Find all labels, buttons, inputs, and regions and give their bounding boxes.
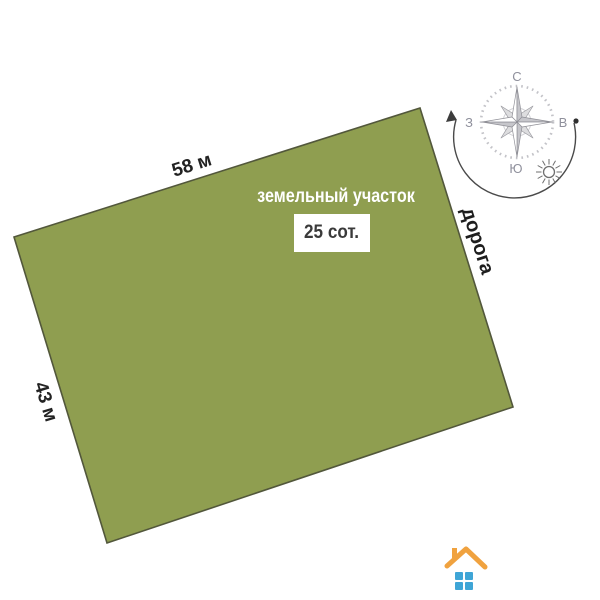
sun-path-arrowhead bbox=[446, 110, 457, 122]
compass-label-west: З bbox=[465, 115, 473, 130]
plan-drawing: С В Ю З bbox=[0, 0, 600, 600]
land-plot-plan: С В Ю З bbox=[0, 0, 600, 600]
area-badge: 25 сот. bbox=[294, 214, 370, 252]
house-windows bbox=[455, 572, 473, 590]
sun-path-start-dot bbox=[573, 118, 578, 123]
house-logo-icon bbox=[444, 544, 490, 600]
moveru-logo[interactable]: move.ru bbox=[444, 544, 600, 600]
land-parcel-shape bbox=[14, 108, 513, 543]
compass-label-south: Ю bbox=[509, 161, 522, 176]
compass-cardinal-points bbox=[482, 87, 552, 157]
area-badge-value: 25 сот. bbox=[305, 222, 360, 244]
compass-rose-icon: С В Ю З bbox=[465, 69, 567, 176]
compass-label-north: С bbox=[512, 69, 521, 84]
sun-icon bbox=[536, 159, 562, 185]
plot-title: земельный участок bbox=[257, 186, 415, 208]
compass-label-east: В bbox=[559, 115, 568, 130]
